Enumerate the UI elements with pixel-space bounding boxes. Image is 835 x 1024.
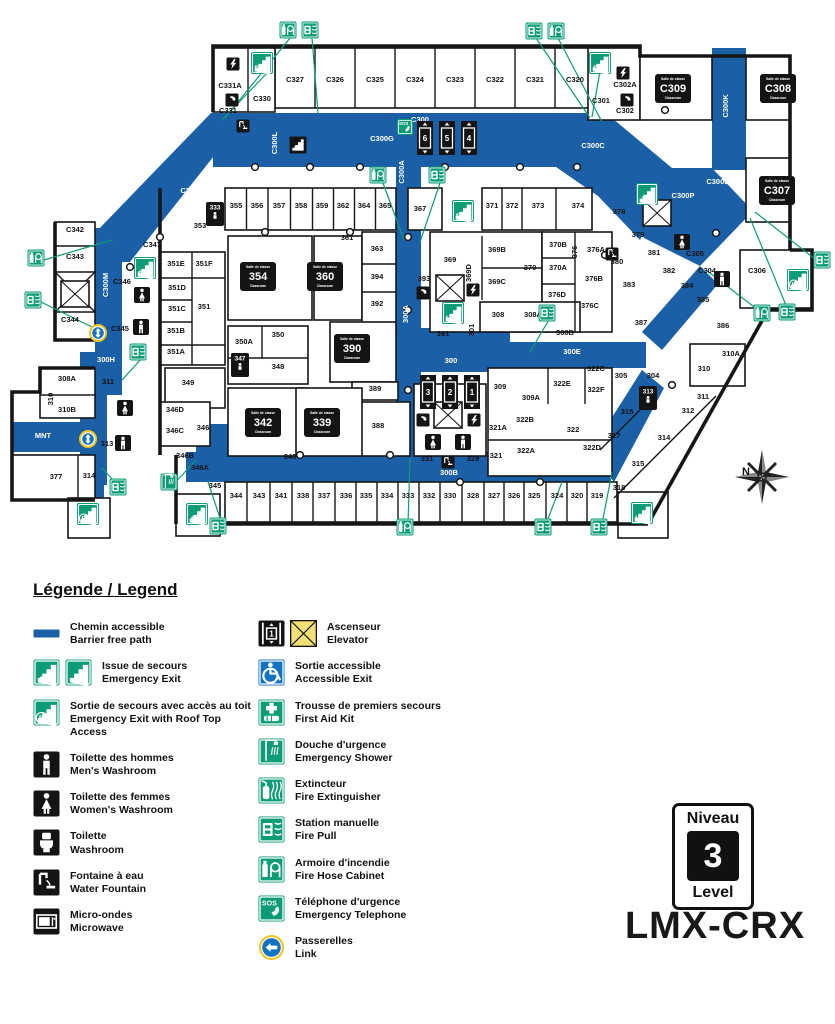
svg-text:L: L [635, 515, 640, 524]
svg-text:Classroom: Classroom [314, 430, 331, 434]
room-label-C305: C305 [686, 249, 704, 258]
emergency-exit-roof-glyph: B [34, 699, 60, 726]
corridor-label-304A: 304A [85, 394, 94, 413]
svg-text:Salle de classe: Salle de classe [765, 179, 789, 183]
stairs-icon: 3 [290, 137, 307, 154]
accessible-exit-icon [258, 659, 285, 686]
room-label-309: 309 [494, 382, 507, 391]
first-aid-icon [258, 699, 285, 726]
room-label-393: 393 [418, 274, 431, 283]
fire-pull-icon [591, 519, 608, 536]
room-label-315: 315 [621, 407, 634, 416]
washroom-room-icon: 333 [206, 202, 224, 226]
fire-hose-cabinet-icon [397, 519, 414, 536]
svg-text:J: J [640, 196, 644, 205]
room-label-346D: 346D [166, 405, 185, 414]
mens-washroom-icon [455, 434, 471, 450]
room-label-322A: 322A [517, 446, 536, 455]
room-label-351A: 351A [167, 347, 186, 356]
room-label-322C: 322C [587, 364, 606, 373]
room-label-322: 322 [567, 425, 580, 434]
legend-item-text: Armoire d'incendieFire Hose Cabinet [295, 856, 390, 883]
corridor-label-C300A: C300A [397, 160, 406, 184]
room-label-384: 384 [681, 281, 694, 290]
womens-washroom-icon [117, 400, 133, 416]
svg-text:Salle de classe: Salle de classe [766, 77, 790, 81]
emergency-shower-icon [161, 474, 178, 491]
room-label-369C: 369C [488, 277, 507, 286]
svg-text:H: H [446, 315, 452, 324]
room-label-379: 379 [632, 230, 645, 239]
room-label-328: 328 [467, 491, 480, 500]
womens-washroom-glyph [34, 791, 60, 817]
elevator-car-3: 3 [420, 375, 436, 409]
room-label-301: 301 [467, 324, 476, 337]
emergency-exit-F-icon: F [589, 52, 611, 75]
room-label-327: 327 [488, 491, 501, 500]
legend-item-fire-pull: Station manuelleFire Pull [258, 816, 518, 843]
legend-item-text: AscenseurElevator [327, 620, 381, 647]
legend-item-emergency-exit: AIssue de secoursEmergency Exit [33, 659, 258, 686]
room-label-350: 350 [272, 330, 285, 339]
legend-item-text: Issue de secoursEmergency Exit [102, 659, 187, 686]
room-label-361: 361 [341, 233, 354, 242]
room-label-344: 344 [230, 491, 243, 500]
fire-pull-icon [302, 22, 319, 39]
electrical-icon [227, 58, 240, 71]
classroom-badge-C308: Salle de classeC308Classroom [760, 74, 796, 103]
svg-text:D: D [255, 65, 261, 74]
water-fountain-icon [442, 456, 455, 469]
fire-hose-glyph [259, 856, 285, 882]
room-label-376D: 376D [548, 290, 567, 299]
mens-washroom-icon [33, 751, 60, 778]
room-label-351C: 351C [168, 304, 187, 313]
elevator-shaft-glyph [291, 621, 317, 647]
room-label-357: 357 [273, 201, 286, 210]
room-label-304: 304 [647, 371, 660, 380]
room-label-394: 394 [371, 272, 384, 281]
room-label-391: 391 [437, 329, 450, 338]
room-label-386: 386 [717, 321, 730, 330]
water-fountain-glyph [34, 869, 60, 895]
room-label-C302A: C302A [613, 80, 637, 89]
svg-text:C308: C308 [765, 83, 791, 95]
room-label-337: 337 [318, 491, 331, 500]
svg-text:Classroom: Classroom [344, 356, 361, 360]
room-label-353: 353 [194, 221, 207, 230]
room-label-383: 383 [623, 280, 636, 289]
legend: Légende / Legend Chemin accessibleBarrie… [33, 580, 593, 973]
legend-item-mens-washroom: Toilette des hommesMen's Washroom [33, 751, 258, 778]
barrier-path-icon [33, 620, 60, 647]
room-label-314: 314 [83, 471, 96, 480]
room-label-381: 381 [648, 248, 661, 257]
svg-text:Classroom: Classroom [250, 284, 267, 288]
legend-item-text: Toilette des femmesWomen's Washroom [70, 790, 173, 817]
room-label-C342: C342 [66, 225, 84, 234]
telephone-icon [226, 94, 239, 107]
legend-item-barrier-path: Chemin accessibleBarrier free path [33, 620, 258, 647]
elevator-glyph: 1 [259, 621, 285, 647]
emergency-exit-H-icon: H [442, 302, 464, 325]
classroom-badge-C307: Salle de classeC307Classroom [759, 176, 795, 205]
room-label-322D: 322D [583, 443, 602, 452]
corridor-label-C300N: C300N [180, 186, 203, 195]
room-label-351: 351 [198, 302, 211, 311]
corridor-label-C300K: C300K [721, 94, 730, 118]
legend-item-text: Trousse de premiers secoursFirst Aid Kit [295, 699, 441, 726]
svg-text:Salle de classe: Salle de classe [251, 411, 275, 415]
legend-item-fire-hose: Armoire d'incendieFire Hose Cabinet [258, 856, 518, 883]
svg-text:4: 4 [467, 134, 472, 143]
level-number: 3 [687, 831, 739, 881]
fire-pull-icon [526, 23, 543, 40]
room-label-311: 311 [697, 392, 709, 401]
room-label-370: 370 [524, 263, 537, 272]
legend-item-text: ToiletteWashroom [70, 829, 124, 856]
elevator-car-1: 1 [464, 375, 480, 409]
room-label-340: 340 [284, 452, 297, 461]
corridor-label-C300G: C300G [370, 134, 394, 143]
fire-pull-icon [779, 304, 796, 321]
room-label-C325: C325 [366, 75, 384, 84]
svg-text:3: 3 [426, 388, 431, 397]
svg-text:3: 3 [294, 147, 297, 153]
svg-text:Salle de classe: Salle de classe [246, 265, 270, 269]
corridor-label-300H: 300H [97, 355, 115, 364]
svg-text:360: 360 [316, 271, 334, 283]
emergency-exit-K-icon: K [787, 269, 809, 292]
room-label-370B: 370B [549, 240, 568, 249]
legend-item-water-fountain: Fontaine à eauWater Fountain [33, 869, 258, 896]
fire-pull-icon [535, 519, 552, 536]
svg-text:1: 1 [269, 630, 274, 639]
room-label-C304: C304 [698, 266, 717, 275]
fire-hose-cabinet-icon [28, 250, 45, 267]
room-label-C327: C327 [286, 75, 304, 84]
room-label-C346: C346 [113, 277, 131, 286]
emergency-exit-B-icon: B [77, 503, 99, 526]
room-label-345: 345 [209, 481, 222, 490]
room-label-C321: C321 [526, 75, 544, 84]
room-label-326: 326 [508, 491, 521, 500]
room-label-C302: C302 [616, 106, 634, 115]
svg-text:390: 390 [343, 343, 361, 355]
room-label-313: 313 [101, 439, 114, 448]
svg-text:Salle de classe: Salle de classe [310, 411, 334, 415]
room-label-367: 367 [414, 204, 427, 213]
telephone-icon [417, 414, 430, 427]
room-label-343: 343 [253, 491, 266, 500]
legend-item-text: Fontaine à eauWater Fountain [70, 869, 146, 896]
room-label-C326: C326 [326, 75, 344, 84]
room-label-376A: 376A [587, 245, 606, 254]
room-label-376B: 376B [585, 274, 604, 283]
level-badge-top-label: Niveau [675, 810, 751, 828]
legend-column-right: 1AscenseurElevatorSortie accessibleAcces… [258, 620, 518, 973]
electrical-icon [467, 284, 480, 297]
room-label-351D: 351D [168, 283, 187, 292]
room-label-314: 314 [658, 433, 671, 442]
svg-text:313: 313 [643, 389, 654, 396]
svg-text:Salle de classe: Salle de classe [340, 337, 364, 341]
room-label-359: 359 [316, 201, 329, 210]
room-label-310: 310 [46, 393, 55, 406]
room-label-392: 392 [371, 299, 384, 308]
emergency-shower-icon [258, 738, 285, 765]
legend-item-accessible-exit: Sortie accessibleAccessible Exit [258, 659, 518, 686]
emergency-telephone-icon: SOS [397, 119, 413, 135]
room-label-363: 363 [371, 244, 384, 253]
corridor-label-300E: 300E [563, 347, 581, 356]
room-label-351F: 351F [195, 259, 213, 268]
svg-text:C309: C309 [660, 83, 686, 95]
svg-text:342: 342 [254, 417, 272, 429]
legend-item-text: Douche d'urgenceEmergency Shower [295, 738, 392, 765]
room-label-374: 374 [572, 201, 585, 210]
emergency-exit-A-icon: A [186, 503, 208, 526]
room-label-389: 389 [369, 384, 382, 393]
first-aid-glyph [259, 699, 285, 725]
microwave-icon [33, 908, 60, 935]
legend-item-emergency-telephone: SOSTéléphone d'urgenceEmergency Telephon… [258, 895, 518, 922]
room-label-322E: 322E [553, 379, 571, 388]
room-label-311: 311 [102, 377, 114, 386]
room-label-333: 333 [402, 491, 415, 500]
classroom-badge-342: Salle de classe342Classroom [245, 408, 281, 437]
room-label-334: 334 [381, 491, 394, 500]
room-label-369B: 369B [488, 245, 507, 254]
svg-text:K: K [792, 282, 797, 289]
legend-item-fire-extinguisher: ExtincteurFire Extinguisher [258, 777, 518, 804]
washroom-room-icon: 347 [231, 353, 249, 377]
link-icon [89, 324, 107, 342]
legend-item-text: Téléphone d'urgenceEmergency Telephone [295, 895, 406, 922]
svg-text:Classroom: Classroom [770, 96, 787, 100]
svg-text:A: A [190, 516, 196, 525]
room-label-310B: 310B [58, 405, 77, 414]
room-label-341: 341 [275, 491, 288, 500]
room-label-369D: 369D [464, 263, 473, 282]
room-label-372: 372 [506, 201, 519, 210]
room-label-335: 335 [360, 491, 373, 500]
fire-pull-icon [130, 344, 147, 361]
room-label-355: 355 [230, 201, 243, 210]
room-label-308B: 308B [556, 328, 575, 337]
room-label-325: 325 [528, 491, 541, 500]
room-label-C331: C331 [219, 106, 237, 115]
room-label-322F: 322F [587, 385, 605, 394]
fire-extinguisher-icon [258, 777, 285, 804]
room-label-346B: 346B [176, 451, 195, 460]
svg-text:C307: C307 [764, 185, 790, 197]
room-label-351E: 351E [167, 259, 185, 268]
room-label-346: 346 [197, 423, 210, 432]
womens-washroom-icon [33, 790, 60, 817]
legend-item-emergency-exit-roof: BSortie de secours avec accès au toitEme… [33, 699, 258, 739]
washroom-glyph [34, 830, 60, 856]
emergency-telephone-glyph: SOS [259, 895, 285, 921]
svg-text:2: 2 [448, 388, 453, 397]
shaft [436, 275, 464, 301]
legend-item-washroom: ToiletteWashroom [33, 829, 258, 856]
emergency-exit-E-icon: E [452, 200, 474, 223]
level-badge-bottom-label: Level [675, 884, 751, 902]
water-fountain-icon [606, 248, 619, 261]
room-label-310: 310 [698, 364, 711, 373]
fire-pull-glyph [259, 817, 285, 843]
floor-plan-map: C300C300AC300BC300CC300GC300HC300KC300LC… [0, 0, 835, 575]
svg-text:1: 1 [470, 388, 475, 397]
emergency-shower-glyph [259, 738, 285, 764]
emergency-exit-J-icon: J [636, 183, 658, 206]
room-label-330: 330 [444, 491, 457, 500]
svg-text:C: C [138, 270, 144, 279]
svg-text:B: B [39, 713, 45, 722]
legend-item-text: Sortie accessibleAccessible Exit [295, 659, 381, 686]
emergency-telephone-icon: SOS [258, 895, 285, 922]
room-label-348: 348 [272, 362, 285, 371]
legend-item-text: Sortie de secours avec accès au toitEmer… [70, 699, 258, 739]
legend-column-left: Chemin accessibleBarrier free pathAIssue… [33, 620, 258, 973]
svg-text:Salle de classe: Salle de classe [661, 77, 685, 81]
mens-washroom-icon [115, 435, 131, 451]
emergency-exit-D-icon: D [251, 52, 273, 75]
svg-text:SOS: SOS [262, 900, 277, 907]
room-label-322B: 322B [516, 415, 535, 424]
classroom-badge-354: Salle de classe354Classroom [240, 262, 276, 291]
room-label-315: 315 [632, 459, 645, 468]
room-label-336: 336 [340, 491, 353, 500]
elevator-icon: 1 [258, 620, 285, 647]
room-label-373: 373 [532, 201, 545, 210]
svg-text:339: 339 [313, 417, 331, 429]
shaft [61, 281, 89, 307]
compass-north-label: N [742, 466, 750, 478]
link-icon [258, 934, 285, 961]
legend-item-text: Station manuelleFire Pull [295, 816, 379, 843]
womens-washroom-icon [134, 287, 150, 303]
telephone-icon [417, 287, 430, 300]
elevator-car-4: 4 [461, 121, 477, 155]
microwave-glyph [34, 908, 60, 934]
room-label-331: 331 [421, 454, 434, 463]
room-label-371: 371 [486, 201, 499, 210]
barrier-path-glyph [34, 630, 60, 638]
accessible-exit-glyph [259, 660, 285, 686]
room-label-308: 308 [492, 310, 505, 319]
legend-item-first-aid: Trousse de premiers secoursFirst Aid Kit [258, 699, 518, 726]
svg-text:E: E [456, 213, 461, 222]
room-label-305: 305 [615, 371, 628, 380]
washroom-icon [33, 829, 60, 856]
svg-text:B: B [82, 516, 87, 523]
room-label-364: 364 [358, 201, 371, 210]
corridor-label-C300M: C300M [101, 273, 110, 297]
water-fountain-icon [33, 869, 60, 896]
room-label-C320: C320 [566, 75, 584, 84]
womens-washroom-icon [425, 434, 441, 450]
electrical-icon [617, 67, 630, 80]
room-label-C331A: C331A [218, 81, 242, 90]
legend-item-elevator: 1AscenseurElevator [258, 620, 518, 647]
washroom-room-icon: 313 [639, 386, 657, 410]
room-label-376: 376 [570, 246, 579, 259]
link-icon [79, 430, 97, 448]
room-label-387: 387 [635, 318, 648, 327]
room-label-317: 317 [608, 431, 621, 440]
emergency-exit-icon: A [33, 659, 60, 686]
corridor-label-300: 300 [445, 356, 458, 365]
room-label-351B: 351B [167, 326, 186, 335]
corridor-label-C300L: C300L [270, 131, 279, 154]
room-label-C324: C324 [406, 75, 425, 84]
svg-text:6: 6 [423, 134, 428, 143]
room-label-378: 378 [613, 207, 626, 216]
legend-item-text: Chemin accessibleBarrier free path [70, 620, 165, 647]
room-label-320: 320 [571, 491, 584, 500]
room-label-382: 382 [663, 266, 676, 275]
svg-text:Classroom: Classroom [665, 96, 682, 100]
fire-hose-cabinet-icon [370, 167, 387, 184]
room-label-321: 321 [490, 451, 503, 460]
mens-washroom-icon [714, 271, 730, 287]
room-label-349: 349 [182, 378, 195, 387]
electrical-icon [468, 414, 481, 427]
room-label-350A: 350A [235, 337, 254, 346]
elevator-car-2: 2 [442, 375, 458, 409]
corridor-label-300B: 300B [440, 468, 459, 477]
fire-extinguisher-glyph [259, 778, 285, 804]
room-label-C306: C306 [748, 266, 766, 275]
svg-text:Classroom: Classroom [317, 284, 334, 288]
legend-item-womens-washroom: Toilette des femmesWomen's Washroom [33, 790, 258, 817]
room-label-332: 332 [423, 491, 436, 500]
room-label-324: 324 [551, 491, 564, 500]
corridor-label-C300C: C300C [581, 141, 605, 150]
emergency-exit-L-icon: L [631, 502, 653, 525]
room-label-C323: C323 [446, 75, 464, 84]
room-label-329: 329 [467, 454, 480, 463]
corridor-label-C300B: C300B [706, 177, 730, 186]
room-label-356: 356 [251, 201, 264, 210]
svg-text:A: A [38, 675, 45, 685]
fire-hose-cabinet-icon [754, 305, 771, 322]
elevator-car-6: 6 [417, 121, 433, 155]
room-label-309A: 309A [522, 393, 541, 402]
building-code: LMX-CRX [615, 905, 815, 948]
emergency-exit-roof-icon: B [33, 699, 60, 726]
elevator-car-5: 5 [439, 121, 455, 155]
fire-hose-cabinet-icon [548, 23, 565, 40]
svg-text:347: 347 [235, 356, 246, 363]
legend-title: Légende / Legend [33, 580, 593, 600]
svg-text:5: 5 [445, 134, 450, 143]
corridor-label-300G: 300G [568, 465, 587, 474]
corridor-label-300F: 300F [680, 327, 698, 336]
room-label-369: 369 [444, 255, 457, 264]
room-label-338: 338 [297, 491, 310, 500]
fire-pull-icon [258, 816, 285, 843]
svg-text:Classroom: Classroom [769, 198, 786, 202]
svg-text:333: 333 [210, 205, 221, 212]
legend-item-text: Micro-ondesMicrowave [70, 908, 132, 935]
svg-text:F: F [593, 65, 598, 74]
room-label-385: 385 [697, 295, 710, 304]
svg-text:SOS: SOS [399, 121, 408, 126]
room-label-310A: 310A [722, 349, 741, 358]
